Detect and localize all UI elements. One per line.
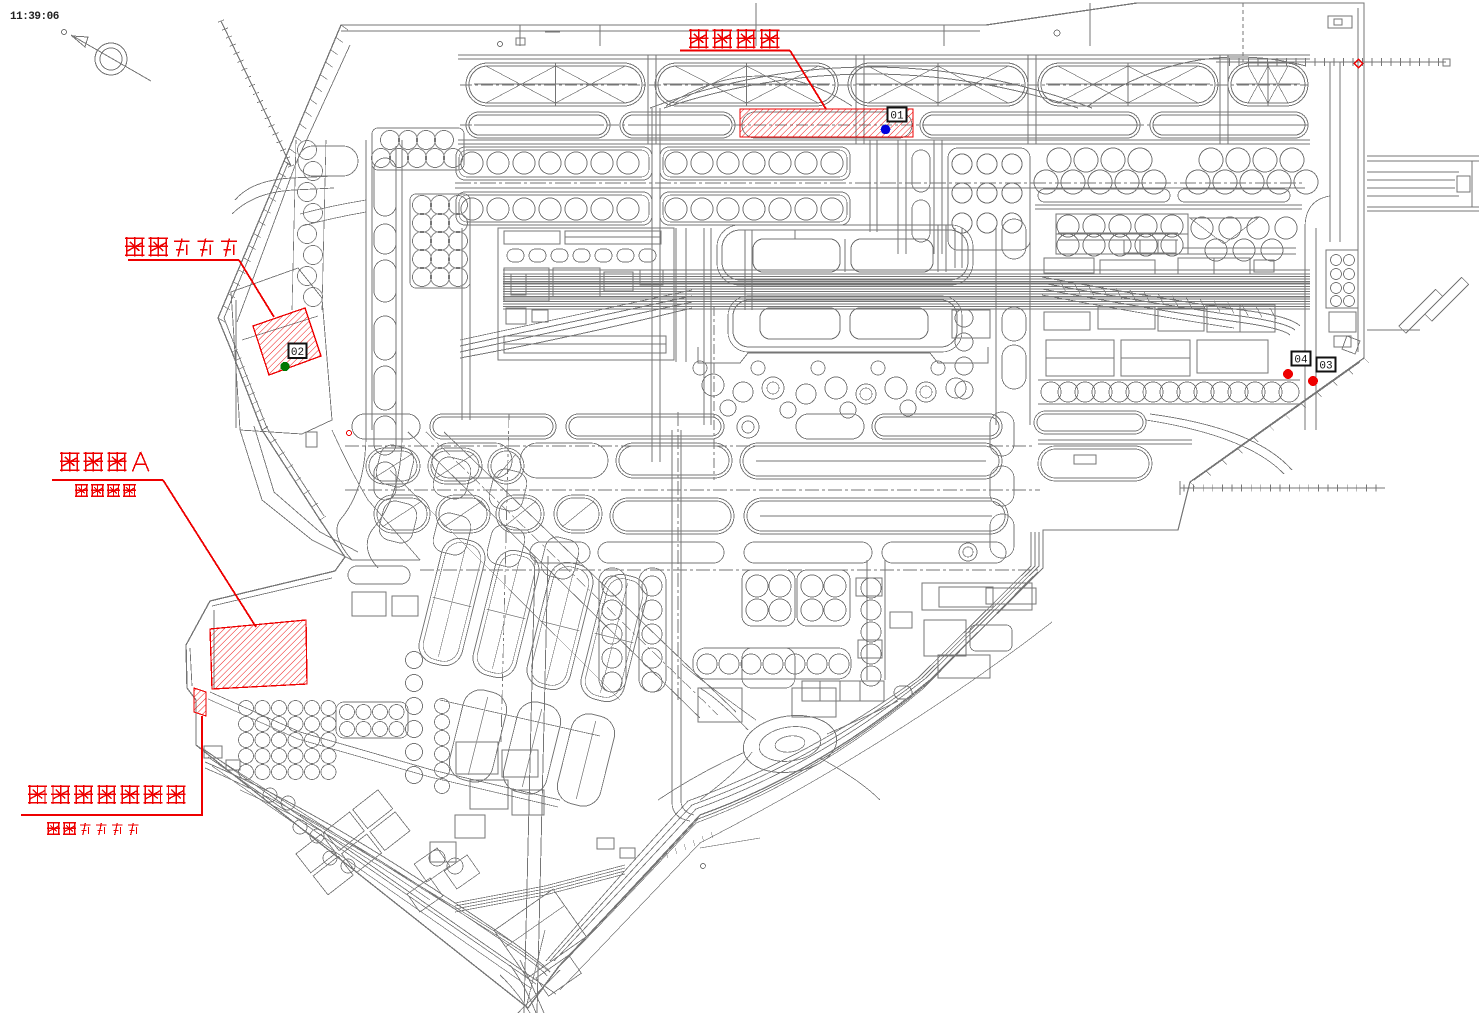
svg-text:03: 03 (1319, 361, 1332, 373)
svg-text:02: 02 (291, 347, 304, 359)
svg-text:04: 04 (1294, 355, 1308, 367)
svg-text:11:39:06: 11:39:06 (10, 11, 59, 23)
svg-text:01: 01 (890, 111, 904, 123)
